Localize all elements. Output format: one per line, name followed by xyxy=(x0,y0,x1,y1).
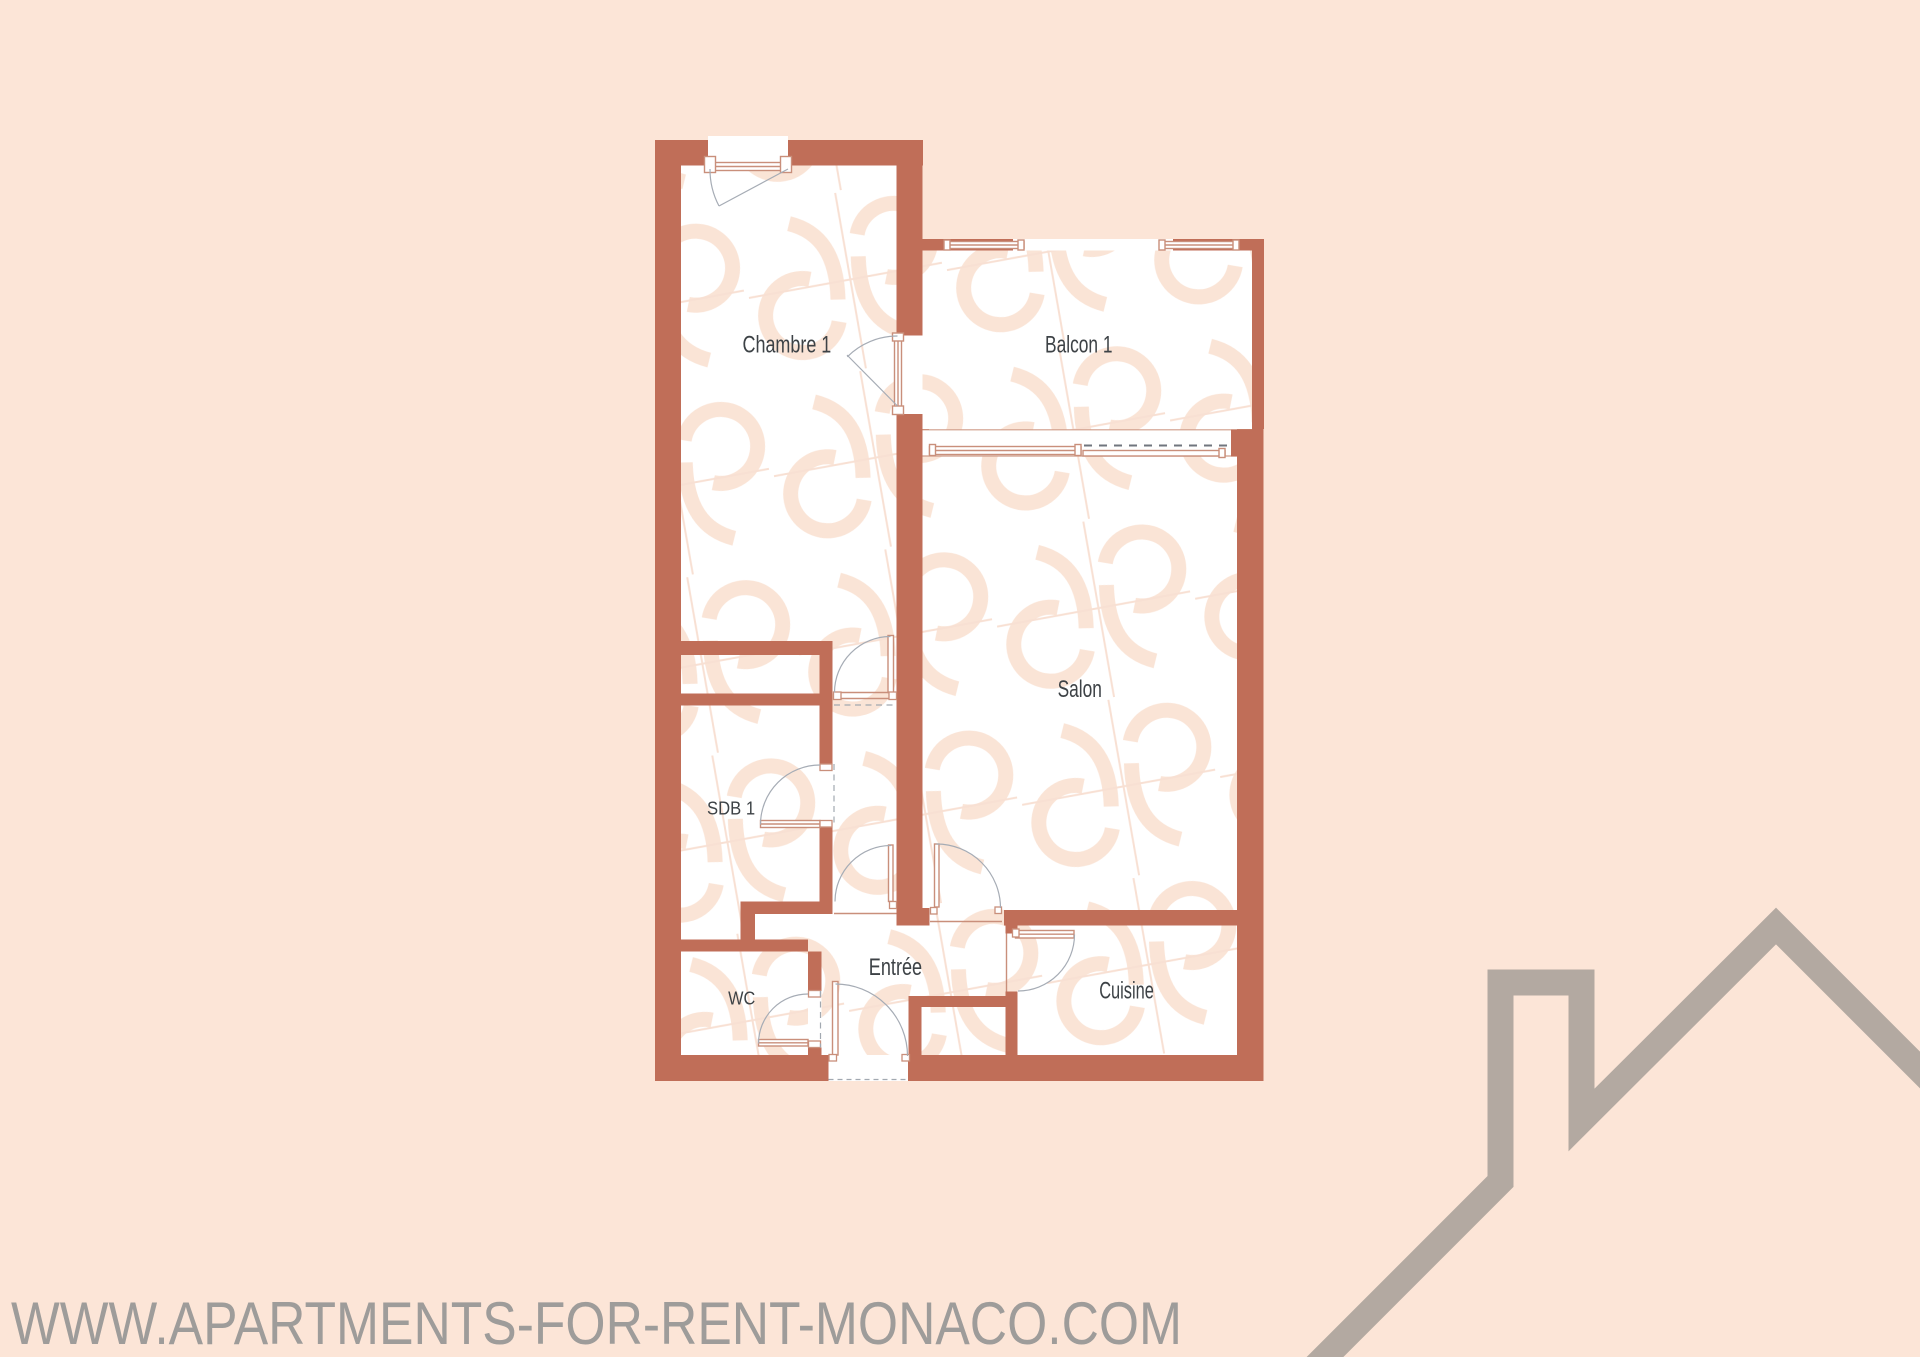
svg-text:Salon: Salon xyxy=(1058,676,1102,703)
svg-text:Cuisine: Cuisine xyxy=(1099,977,1154,1004)
svg-text:WWW.APARTMENTS-FOR-RENT-MONACO: WWW.APARTMENTS-FOR-RENT-MONACO.COM xyxy=(11,1290,1182,1357)
svg-text:Balcon 1: Balcon 1 xyxy=(1045,332,1113,359)
svg-text:WC: WC xyxy=(728,988,755,1008)
svg-text:Chambre 1: Chambre 1 xyxy=(743,332,832,359)
svg-text:Entrée: Entrée xyxy=(869,954,922,981)
svg-text:SDB 1: SDB 1 xyxy=(707,799,755,819)
